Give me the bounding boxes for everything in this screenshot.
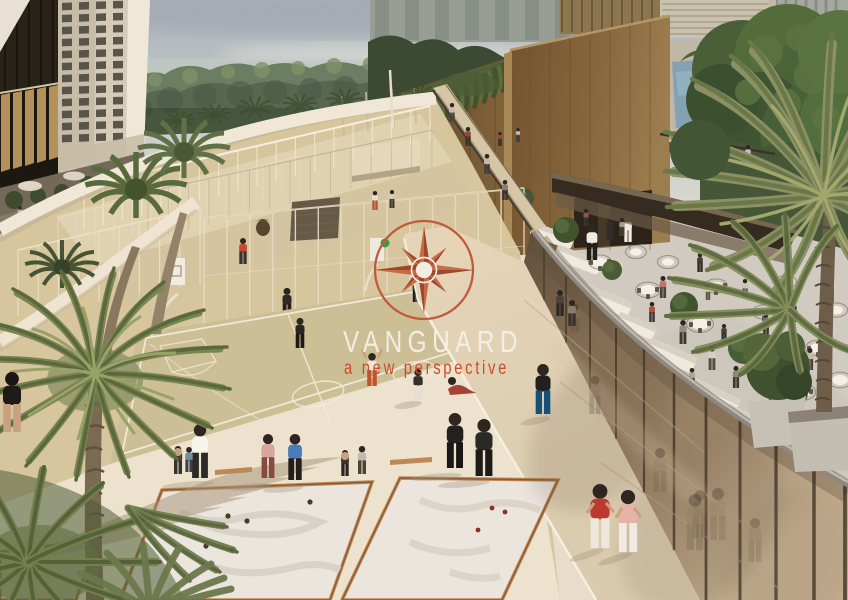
svg-text:VANGUARD: VANGUARD (343, 324, 523, 359)
svg-text:a new perspective: a new perspective (344, 357, 509, 379)
